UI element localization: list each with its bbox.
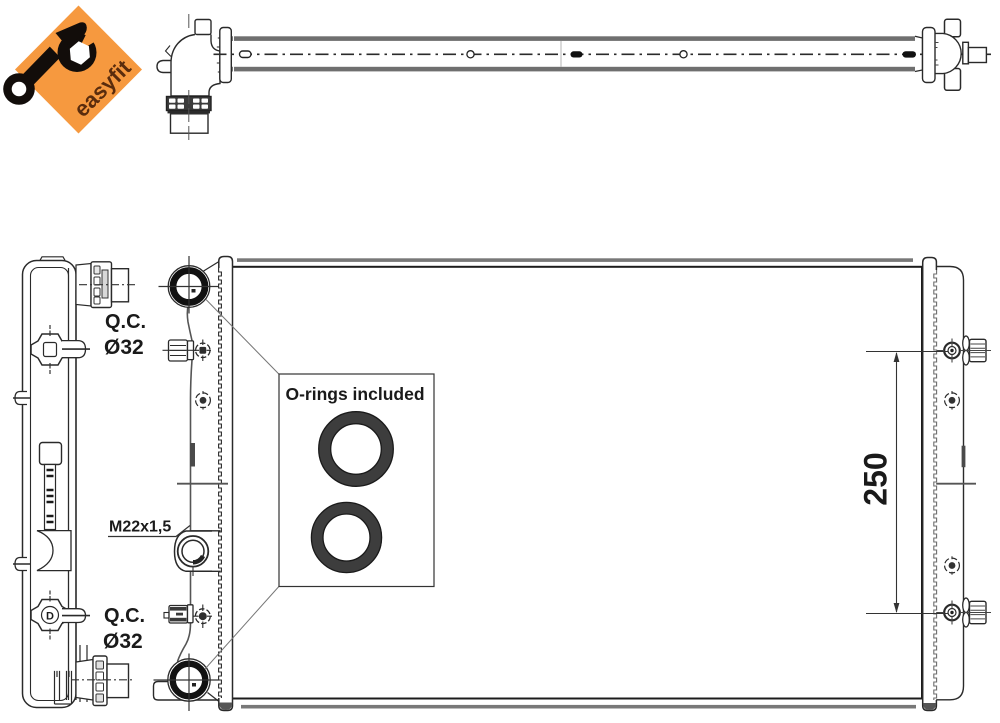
svg-text:Ø32: Ø32 [104,336,144,359]
svg-text:D: D [46,611,54,623]
svg-text:Q.C.: Q.C. [105,311,146,333]
svg-text:Ø32: Ø32 [103,630,143,653]
svg-text:O-rings included: O-rings included [285,384,424,404]
svg-text:250: 250 [857,452,893,505]
svg-text:Q.C.: Q.C. [104,605,145,627]
svg-text:M22x1,5: M22x1,5 [109,519,171,536]
